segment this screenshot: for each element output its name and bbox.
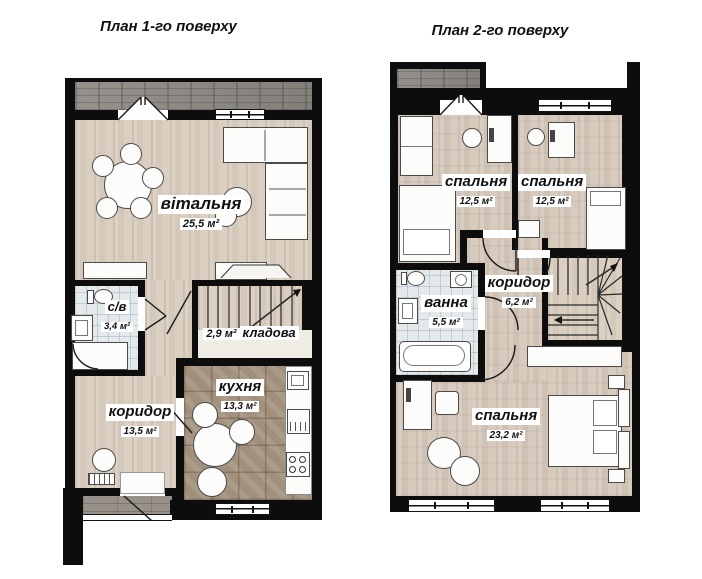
door-opening xyxy=(518,250,550,258)
room-area: 23,2 м² xyxy=(487,430,526,441)
wall xyxy=(627,62,640,88)
dining-chair xyxy=(142,167,164,189)
room-label-corridor: коридор 13,5 м² xyxy=(103,403,177,438)
wardrobe xyxy=(527,346,622,367)
door-opening xyxy=(483,230,516,238)
desk-chair xyxy=(462,128,482,148)
pillow xyxy=(593,400,617,426)
room-name: спальня xyxy=(442,174,510,191)
porch-railing xyxy=(83,514,172,521)
stove-burner xyxy=(299,466,306,473)
kitchen-chair xyxy=(197,467,227,497)
room-area: 5,5 м² xyxy=(429,317,462,328)
terrace-floor xyxy=(75,82,312,111)
computer-monitor xyxy=(406,388,411,402)
entry-step xyxy=(120,472,165,494)
room-area: 12,5 м² xyxy=(533,196,572,207)
door-opening xyxy=(176,398,184,436)
stove-burner xyxy=(299,456,306,463)
wall xyxy=(192,286,198,358)
fireplace xyxy=(215,262,267,280)
sofa xyxy=(223,127,308,163)
pillow xyxy=(590,191,621,206)
floorplan-page: План 1-го поверху План 2-го поверху xyxy=(0,0,702,579)
headboard xyxy=(618,389,630,427)
sink-basin xyxy=(402,303,413,319)
kitchen-chair xyxy=(229,419,255,445)
pillow xyxy=(593,430,617,454)
nightstand xyxy=(608,469,625,483)
door-opening xyxy=(440,100,482,115)
bathtub xyxy=(399,341,471,372)
nightstand xyxy=(608,375,625,389)
room-label-corridor2: коридор 6,2 м² xyxy=(484,274,554,309)
computer-monitor xyxy=(489,128,494,142)
kitchen-sink xyxy=(287,371,309,390)
room-label-storage: 2,9 м²кладова xyxy=(198,324,304,342)
desk-chair xyxy=(435,391,459,415)
room-label-living: вітальня 25,5 м² xyxy=(145,195,257,231)
cabinet xyxy=(518,220,540,238)
cabinet xyxy=(83,262,147,279)
wall xyxy=(65,110,322,120)
floor2-plan: спальня 12,5 м² спальня 12,5 м² ванна 5,… xyxy=(390,88,640,512)
window xyxy=(408,499,495,512)
dining-chair xyxy=(92,155,114,177)
washing-machine xyxy=(450,271,472,288)
wall xyxy=(63,488,83,565)
radiator xyxy=(88,473,115,485)
room-label-bedroom2: спальня 12,5 м² xyxy=(518,173,586,208)
room-name: спальня xyxy=(472,408,540,425)
room-area: 12,5 м² xyxy=(457,196,496,207)
shower xyxy=(72,342,128,370)
pillow xyxy=(403,229,450,255)
room-name: коридор xyxy=(485,275,554,292)
door-opening xyxy=(118,110,168,120)
washer-door xyxy=(455,274,467,286)
headboard xyxy=(618,431,630,469)
wall xyxy=(460,238,467,263)
wardrobe xyxy=(400,116,433,176)
fridge-vents xyxy=(290,422,307,431)
dining-chair xyxy=(120,143,142,165)
room-area: 13,3 м² xyxy=(221,401,260,412)
room-name: ванна xyxy=(421,295,471,312)
bed xyxy=(548,395,622,467)
window xyxy=(215,503,270,515)
fridge xyxy=(287,409,310,434)
floor1-plan: вітальня 25,5 м² с/в 3,4 м² 2,9 м²кладов… xyxy=(65,78,322,520)
wall xyxy=(390,263,485,270)
sofa xyxy=(265,163,308,240)
room-label-bedroom1: спальня 12,5 м² xyxy=(442,173,510,208)
room-name: спальня xyxy=(518,174,586,191)
stool xyxy=(92,448,116,472)
room-name: кухня xyxy=(216,379,265,396)
room-label-bathroom: с/в 3,4 м² xyxy=(89,298,145,333)
computer-monitor xyxy=(550,130,555,142)
window xyxy=(540,499,610,512)
floor1-title: План 1-го поверху xyxy=(40,18,297,35)
room-name: вітальня xyxy=(158,195,245,214)
wall xyxy=(65,370,145,376)
room-name: кладова xyxy=(240,326,299,340)
room-label-bath: ванна 5,5 м² xyxy=(415,294,477,329)
room-label-kitchen: кухня 13,3 м² xyxy=(208,378,272,413)
desk-chair xyxy=(527,128,545,146)
toilet xyxy=(407,271,425,286)
room-label-bedroom3: спальня 23,2 м² xyxy=(472,407,540,442)
room-name: коридор xyxy=(106,404,175,421)
window xyxy=(215,109,265,120)
stove xyxy=(286,452,310,477)
bathtub-basin xyxy=(403,345,465,366)
stove-burner xyxy=(289,466,296,473)
room-name: с/в xyxy=(105,300,130,314)
room-area: 3,4 м² xyxy=(101,322,133,332)
room-area: 13,5 м² xyxy=(121,426,160,437)
sink-basin xyxy=(75,320,88,336)
sink-basin xyxy=(291,375,304,386)
room-area: 6,2 м² xyxy=(502,297,535,308)
dining-chair xyxy=(96,197,118,219)
bed xyxy=(586,187,626,250)
room-area: 2,9 м² xyxy=(203,328,239,340)
floor2-title: План 2-го поверху xyxy=(375,22,625,39)
room-area: 25,5 м² xyxy=(180,218,222,230)
ottoman xyxy=(450,456,480,486)
stove-burner xyxy=(289,456,296,463)
wall xyxy=(198,280,312,286)
wall xyxy=(65,280,145,286)
stairs2-floor xyxy=(548,255,622,340)
window xyxy=(538,99,612,112)
wall xyxy=(176,358,312,366)
